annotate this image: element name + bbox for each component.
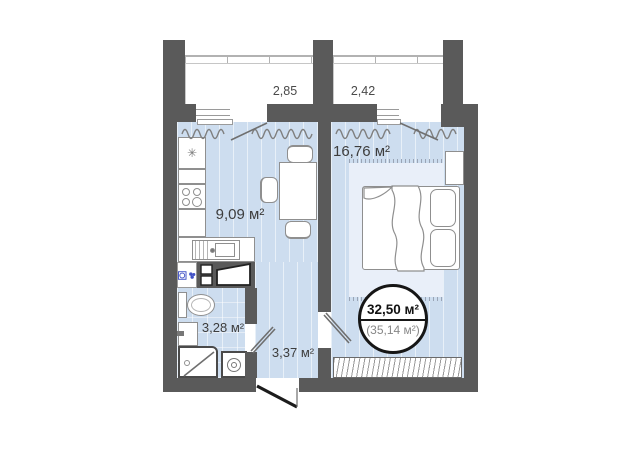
towel-dryer-icon [188,271,197,280]
bedroom-area-label: 16,76 м² [333,143,390,160]
hallway-area-label: 3,37 м² [262,345,324,360]
balcony-2 [333,60,445,106]
chair-top [287,145,313,163]
balcony-1-area-label: 2,85 [255,84,315,98]
entrance-door-opening [256,378,299,392]
shower-tray [178,346,218,378]
vent-shaft-block [197,262,255,288]
area-summary-badge: 32,50 м² (35,14 м²) [358,284,428,354]
fridge: ✳ [178,137,206,169]
wall-bottom-a [163,378,256,392]
kitchen-sink-basin [215,243,235,257]
bathroom-faucet [177,331,184,336]
living-area-value: 32,50 м² [367,302,419,317]
floor-plan: 2,85 2,42 ✳ [0,0,644,470]
pillow [430,189,456,227]
wall-bottom-b [299,378,478,392]
wall-top-a [163,104,196,122]
pillow [430,229,456,267]
washing-machine-icon [178,271,187,280]
kitchen-window-sill [197,119,233,125]
wardrobe [333,357,462,378]
wall-pillar-left [163,40,185,110]
snowflake-icon: ✳ [179,138,205,168]
stove-burner [182,188,190,196]
balcony-1 [185,60,315,106]
wall-right [464,122,478,392]
chair-left [260,177,278,203]
wall-pillar-right [443,40,463,110]
kitchen-sink [192,240,240,260]
balcony-1-railing [185,55,313,64]
kitchen-counter-1 [178,169,206,184]
hallway-floor [255,262,318,378]
wall-top-b [267,104,377,122]
chair-bottom [285,221,311,239]
wall-pillar-middle [313,40,333,110]
toilet-bowl-inner [191,298,211,312]
balcony-2-railing [333,55,443,64]
bedroom-window-sill [377,119,401,125]
bathroom-area-label: 3,28 м² [190,320,256,335]
utility-icons-box [177,262,197,288]
total-area-value: (35,14 м²) [366,323,420,337]
shower-drain [184,360,190,366]
washing-machine-drum-inner [231,362,237,368]
washing-machine [221,351,247,378]
dining-table [279,162,317,220]
wall-middle-vertical [318,122,331,312]
toilet-bowl [187,294,215,316]
badge-divider [361,319,425,321]
wall-bathroom-right-b [245,352,257,378]
stove-burner [182,198,190,206]
wall-left [163,122,177,392]
kitchen-area-label: 9,09 м² [200,206,280,223]
stove-burner [193,188,201,196]
balcony-2-area-label: 2,42 [333,84,393,98]
bedroom-balcony-door-opening [399,104,441,122]
nightstand [445,151,464,185]
wall-bathroom-right-a [245,288,257,324]
kitchen-balcony-door-opening [230,104,267,122]
toilet-tank [178,292,187,318]
